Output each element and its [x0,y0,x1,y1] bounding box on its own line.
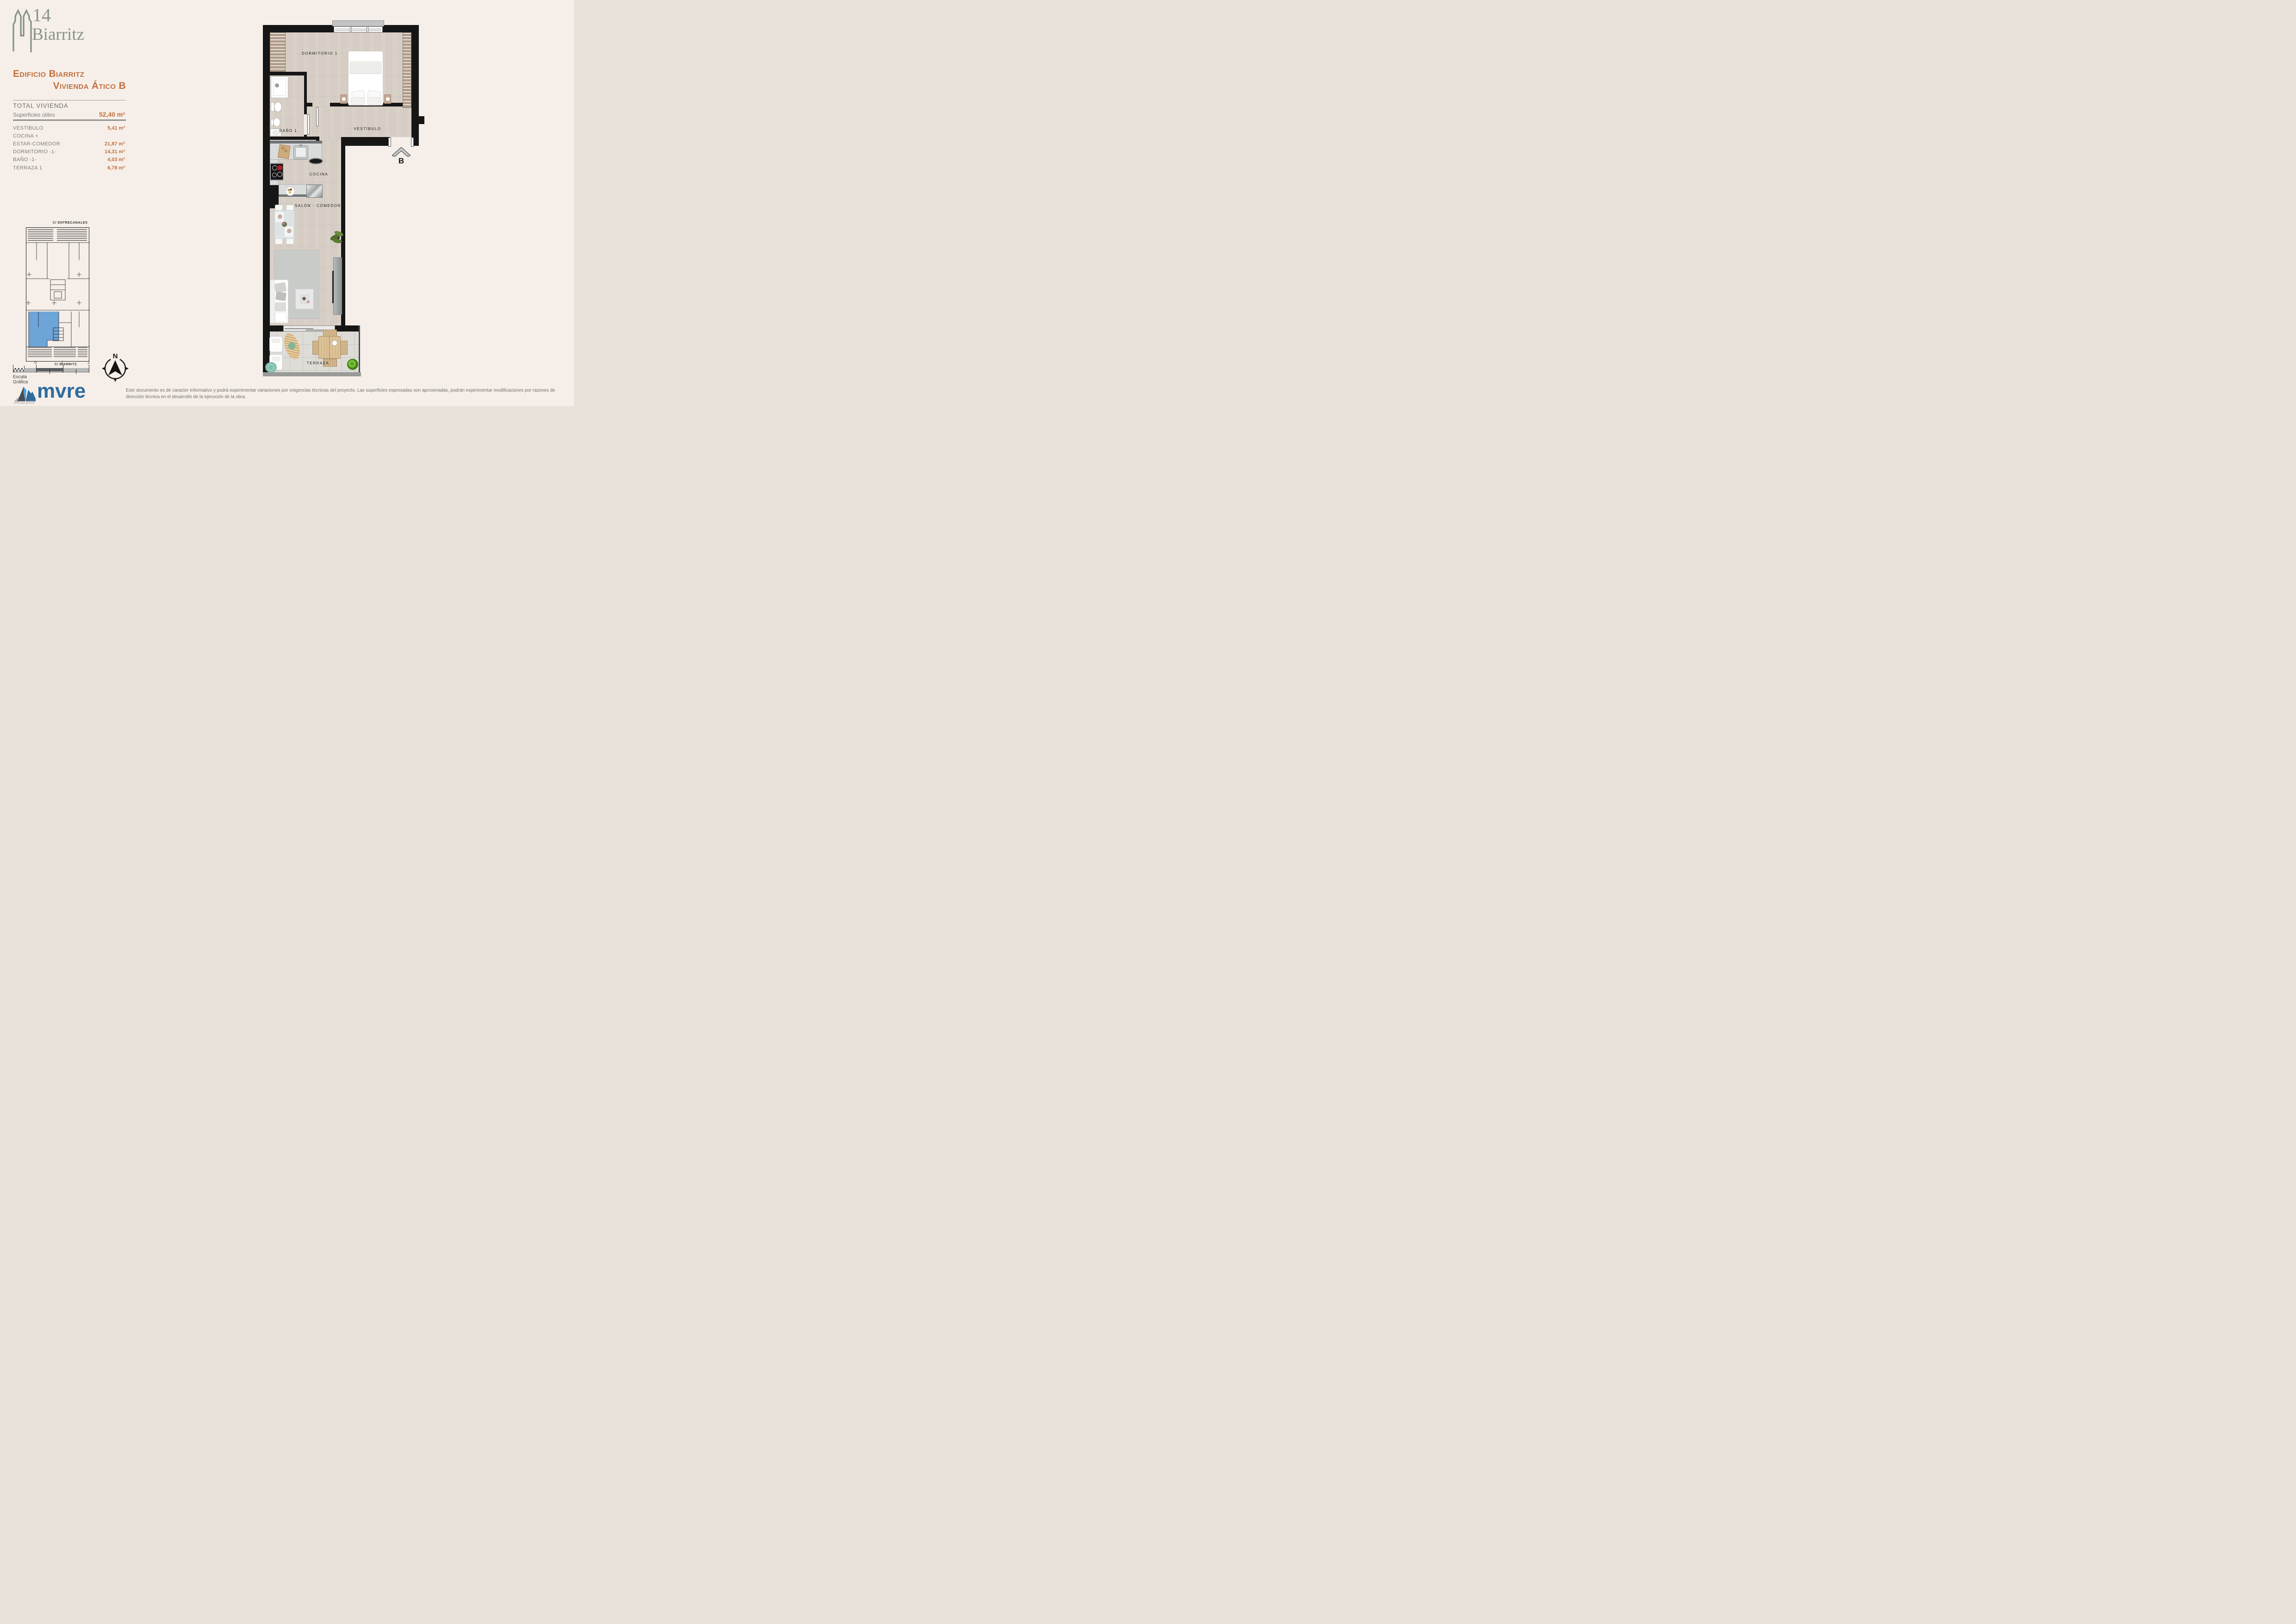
surface-row: BAÑO -1-4,03 m² [13,157,126,163]
scale-tick [63,365,63,373]
summary-rule-top [13,100,126,100]
pot [277,165,283,171]
wall-cocina-top [270,137,319,140]
scale-tick-minor [50,369,50,374]
wall-terraza-north-right [335,325,360,331]
flower-centerpiece [282,222,287,227]
scale-tick [89,365,89,373]
window-awning [332,20,384,26]
room-value: 14,31 m² [105,149,125,155]
dining-table [274,210,295,239]
surface-row: COCINA + [13,133,126,140]
highlighted-unit [29,312,59,347]
brand-number: 14 [32,4,51,26]
fruit-bowl [286,187,295,196]
toilet [271,101,282,113]
street-top-label: C/ ENTRECANALES [53,221,88,225]
scale-number-2: 2 [87,360,90,365]
tv-screen [332,271,334,303]
wall-bano-top [270,72,307,75]
wardrobe-left [270,32,286,72]
surface-row: VESTÍBULO5,41 m² [13,125,126,132]
wardrobe-right [403,32,411,108]
room-label: DORMITORIO -1- [13,149,56,155]
plant [265,362,277,373]
unit-marker: B [398,156,404,164]
room-value: 6,78 m² [107,165,125,171]
room-label-bano: BAÑO 1 [280,129,298,133]
entrance-jamb [411,137,414,147]
unit-entrance-arrow-icon: B [392,147,411,164]
surface-row: ESTAR-COMEDOR21,87 m² [13,141,126,148]
surface-row: TERRAZA 16,78 m² [13,165,126,172]
shower [271,76,288,98]
wall-right [411,25,419,146]
scale-segment-light [24,368,36,371]
scale-tick [13,365,13,373]
room-label: COCINA + [13,133,38,139]
summary-total-value: 52,40 m² [13,111,125,118]
brand-logo: 14 Biarritz [12,6,128,52]
scale-tick-minor [76,369,76,374]
sofa [270,280,288,323]
room-label: BAÑO -1- [13,157,37,162]
room-value: 4,03 m² [107,157,125,162]
room-label-terraza: TERRAZA [307,361,330,365]
key-plan-lines [26,228,90,362]
scale-number-1: 1 [61,360,63,365]
outdoor-table [318,336,341,359]
terraza-parapet-right [359,325,360,372]
cooktop [270,163,284,181]
wall-left [263,25,270,372]
disclaimer-text: Este documento es de caracter informativ… [126,387,566,400]
street-bottom-label: C/ BIARRITZ [55,363,77,366]
title-line1: Edificio Biarritz [13,69,126,80]
plant [330,231,343,246]
nightstand [340,94,347,104]
surface-row: DORMITORIO -1-14,31 m² [13,149,126,156]
bano-door [307,114,310,135]
summary-rule-bottom [13,119,126,121]
date-label: 24/11/2025 [14,400,34,405]
terraza-parapet-bottom [263,372,361,376]
sheet-title: Edificio Biarritz Vivienda Ático B [13,69,126,92]
key-plan-drawing [26,227,89,362]
floor-plan: B DORMITORIO 1 BAÑO 1 VESTÍBULO COCINA S… [263,18,426,379]
room-label: VESTÍBULO [13,125,43,131]
wall-right-step [419,116,424,124]
north-compass-icon: N [101,349,130,383]
kitchen-sink [293,145,308,159]
nightstand [384,94,391,104]
scale-tick [36,365,37,373]
dishwasher [306,185,323,198]
bed [348,51,383,106]
room-value: 21,87 m² [105,141,125,147]
kitchen-counter-top [270,141,322,160]
entrance-jamb [388,137,391,147]
dormitorio-window [334,26,383,32]
bidet [271,117,281,128]
scale-tick-minor [24,366,25,369]
compass-north-label: N [113,352,118,360]
brand-name: Biarritz [32,25,84,44]
mvre-mountain-icon [14,386,36,402]
floorplan-sheet: 14 Biarritz Edificio Biarritz Vivienda Á… [0,0,574,406]
plant [347,359,358,370]
towers-logo-icon [12,7,32,53]
room-label-dormitorio: DORMITORIO 1 [302,51,338,56]
summary-title: TOTAL VIVIENDA [13,102,68,109]
scale-baseline [13,372,89,372]
key-plan: C/ ENTRECANALES [26,221,89,369]
kitchen-counter-lower [279,184,322,197]
entrance-opening [390,137,412,146]
scale-caption: Escala Gráfica [13,375,28,385]
outdoor-chair [340,341,348,355]
tv-unit [333,257,342,315]
room-value: 5,41 m² [107,125,125,131]
coffee-table [295,289,314,309]
room-label: TERRAZA 1 [13,165,43,171]
dormitorio-door [316,107,318,126]
room-label-salon: SALÓN - COMEDOR [295,204,341,208]
scale-segment-checker [13,368,24,371]
room-label: ESTAR-COMEDOR [13,141,60,147]
wall-terraza-north-left [263,325,283,331]
room-label-cocina: COCINA [310,172,329,176]
extractor-hood [309,158,323,164]
room-label-vestibulo: VESTÍBULO [354,127,381,131]
mvre-logo-text: mvre [37,381,86,401]
floor-vestibulo [307,106,411,137]
title-line2: Vivienda Ático B [13,81,126,92]
scale-number-0: 0 [34,360,37,365]
lounge-chair [269,336,283,352]
wall-vestibulo-south [345,137,390,146]
cutting-board [278,144,291,159]
wall-bano-right-a [304,75,307,114]
